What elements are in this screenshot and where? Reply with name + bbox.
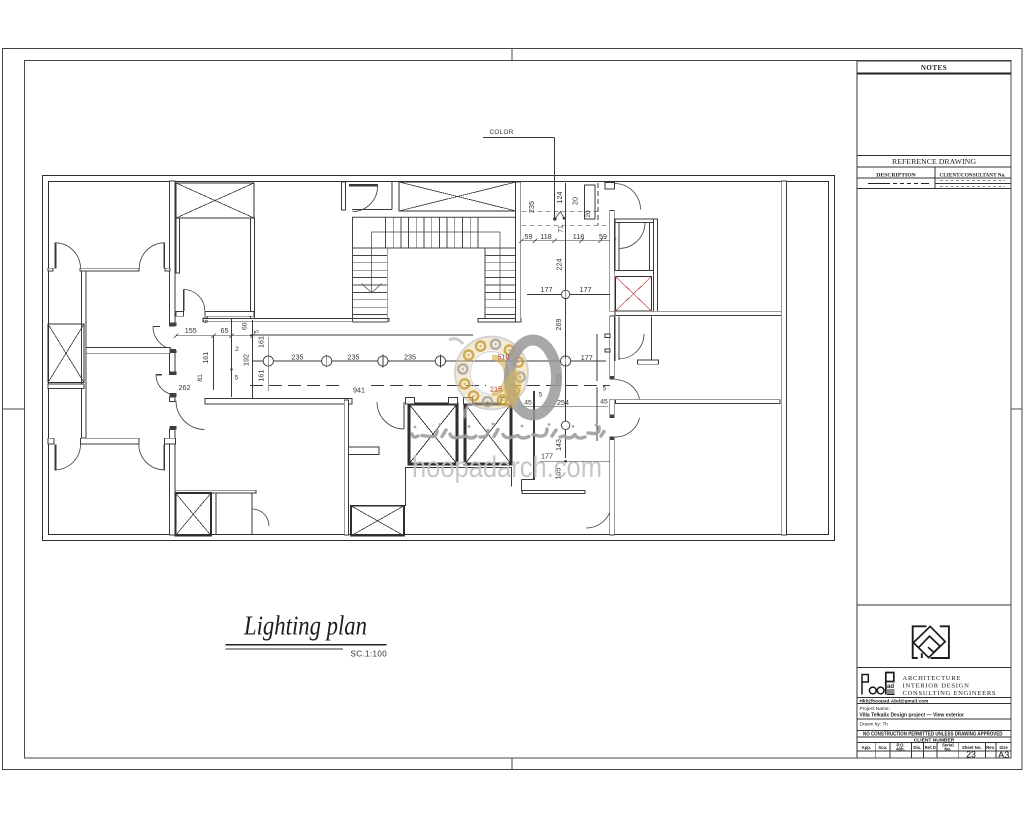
svg-text:177: 177: [581, 353, 593, 362]
svg-text:235: 235: [527, 201, 536, 213]
svg-text:161: 161: [201, 352, 210, 364]
svg-text:61: 61: [203, 316, 210, 324]
svg-text:Sca.: Sca.: [878, 745, 887, 750]
svg-text:NOTES: NOTES: [921, 64, 947, 72]
svg-text:SC.1:100: SC.1:100: [351, 650, 388, 659]
svg-text:Hk02/hoopad.Abd@gmail.com: Hk02/hoopad.Abd@gmail.com: [860, 698, 929, 703]
svg-text:45: 45: [524, 400, 532, 407]
svg-text:254: 254: [557, 398, 569, 407]
svg-text:5: 5: [603, 385, 607, 392]
svg-text:ARCHITECTURE: ARCHITECTURE: [903, 675, 962, 682]
svg-text:23: 23: [966, 750, 976, 760]
svg-text:20: 20: [585, 210, 592, 218]
svg-text:COLOR: COLOR: [490, 129, 514, 136]
svg-text:Project Name:: Project Name:: [860, 706, 890, 712]
svg-text:118: 118: [540, 232, 551, 241]
svg-text:177: 177: [580, 285, 592, 294]
svg-text:No.: No.: [944, 747, 951, 752]
svg-text:143: 143: [556, 439, 563, 451]
svg-text:59: 59: [525, 232, 533, 241]
svg-text:941: 941: [353, 385, 365, 394]
svg-text:71: 71: [558, 225, 565, 233]
svg-text:124: 124: [555, 192, 564, 204]
svg-text:Villa Telkalix Design project: Villa Telkalix Design project — View ext…: [860, 713, 965, 719]
svg-text:Ref.D: Ref.D: [925, 745, 936, 750]
svg-text:5: 5: [539, 391, 543, 398]
svg-text:hoopadarch.com: hoopadarch.com: [412, 451, 602, 484]
svg-text:20: 20: [571, 197, 580, 205]
svg-text:INTERIOR DESIGN: INTERIOR DESIGN: [903, 683, 970, 690]
svg-text:235: 235: [404, 353, 416, 362]
svg-text:118: 118: [573, 232, 584, 241]
svg-text:45: 45: [600, 398, 608, 405]
svg-text:Drawn by: 7h: Drawn by: 7h: [860, 721, 889, 727]
svg-text:155: 155: [185, 326, 197, 335]
svg-text:A3: A3: [998, 750, 1009, 760]
svg-text:Lighting plan: Lighting plan: [243, 611, 367, 641]
svg-text:215: 215: [490, 384, 502, 393]
svg-text:177: 177: [541, 285, 553, 294]
svg-text:235: 235: [292, 353, 304, 362]
svg-text:App.: App.: [862, 745, 872, 750]
svg-text:59: 59: [599, 232, 607, 241]
svg-text:192: 192: [242, 354, 251, 366]
svg-text:REFERENCE DRAWING: REFERENCE DRAWING: [892, 157, 977, 166]
svg-text:224: 224: [555, 259, 564, 271]
svg-text:5: 5: [235, 375, 239, 382]
svg-text:40h.: 40h.: [896, 747, 905, 752]
svg-text:161: 161: [257, 336, 266, 348]
svg-text:CONSULTING ENGINEERS: CONSULTING ENGINEERS: [903, 690, 997, 697]
svg-text:269: 269: [554, 319, 563, 331]
svg-text:161: 161: [257, 370, 266, 382]
svg-text:235: 235: [348, 353, 360, 362]
svg-text:262: 262: [179, 383, 191, 392]
svg-text:81: 81: [197, 374, 204, 382]
svg-text:ad: ad: [887, 684, 894, 690]
svg-text:5: 5: [254, 329, 261, 333]
svg-text:60: 60: [242, 322, 249, 330]
svg-text:65: 65: [221, 326, 229, 335]
svg-text:510: 510: [497, 352, 509, 361]
svg-text:Rev.: Rev.: [986, 745, 995, 750]
svg-text:Dis.: Dis.: [913, 745, 921, 750]
svg-text:2: 2: [235, 346, 239, 353]
